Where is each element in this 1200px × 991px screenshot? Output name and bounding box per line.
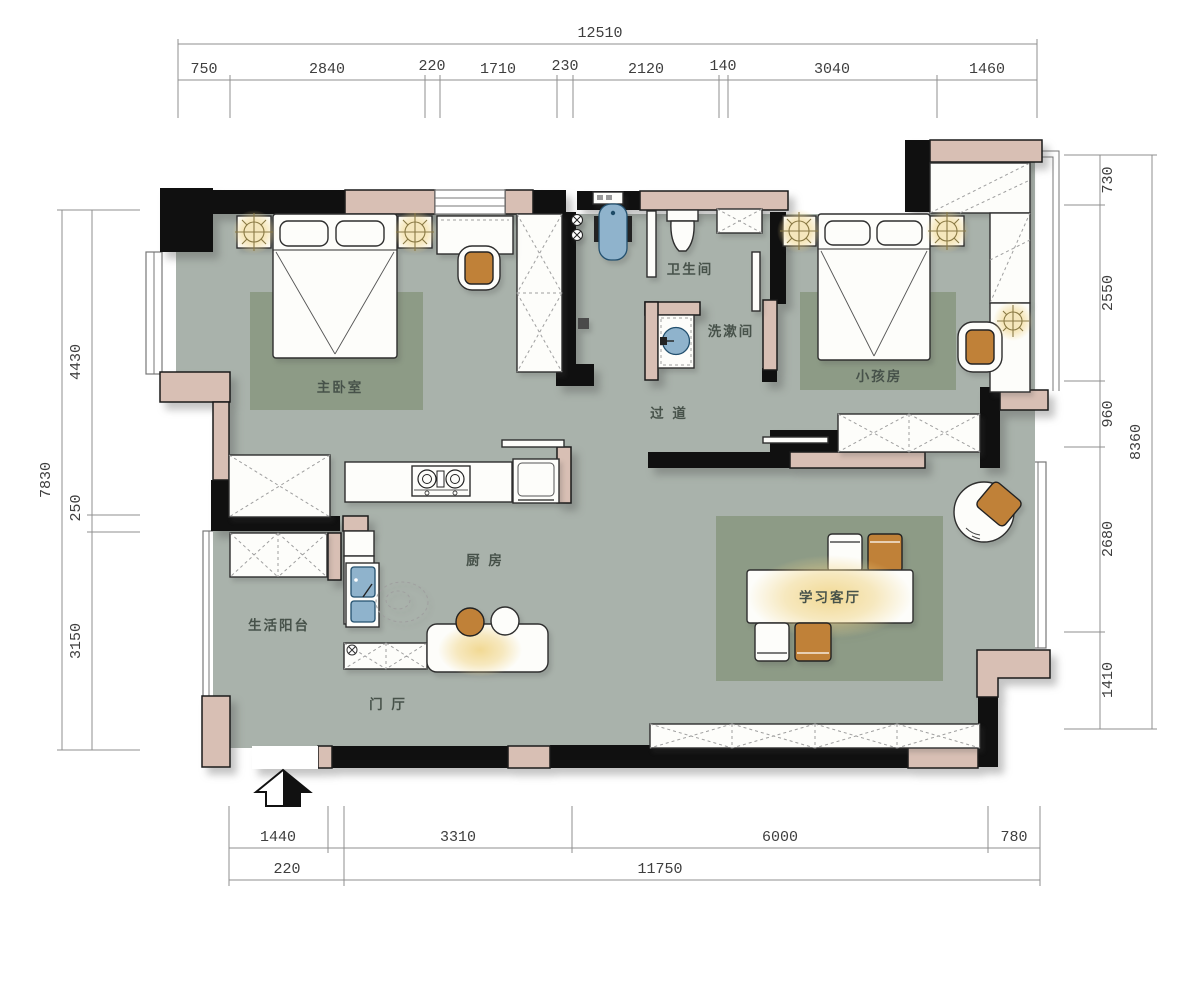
kitchen-sliding-door bbox=[502, 440, 564, 447]
kitchen-sink bbox=[346, 563, 379, 627]
room-label-bathroom: 卫生间 bbox=[667, 261, 714, 278]
floor-plan-page: 主卧室 卫生间 洗漱间 小孩房 过 道 厨 房 学习客厅 生活阳台 门 厅 12… bbox=[0, 0, 1200, 991]
lamp-icon bbox=[232, 210, 276, 254]
dim-top-seg: 3040 bbox=[814, 61, 850, 78]
fridge bbox=[513, 459, 559, 503]
room-label-washroom: 洗漱间 bbox=[708, 323, 755, 340]
dim-bottom-seg: 3310 bbox=[440, 829, 476, 846]
floor-plan-svg: 主卧室 卫生间 洗漱间 小孩房 过 道 厨 房 学习客厅 生活阳台 门 厅 12… bbox=[0, 0, 1200, 991]
dimension-chain-right: 8360 730 2550 960 2680 1410 bbox=[1064, 155, 1157, 729]
dim-right-seg: 730 bbox=[1100, 166, 1117, 193]
foyer-shoe-cabinet bbox=[650, 724, 980, 748]
dim-left-total: 7830 bbox=[38, 462, 55, 498]
bar-stool-white bbox=[491, 607, 519, 635]
kids-bed bbox=[818, 214, 930, 360]
dim-bottom-seg: 11750 bbox=[637, 861, 682, 878]
dimension-chain-bottom: 1440 3310 6000 780 220 11750 bbox=[229, 806, 1040, 886]
lamp-icon bbox=[777, 209, 821, 253]
kitchen-cabinet bbox=[344, 531, 374, 556]
kids-sliding-door bbox=[763, 437, 828, 443]
dim-top-total: 12510 bbox=[577, 25, 622, 42]
dim-left-seg: 250 bbox=[68, 494, 85, 521]
kids-wardrobe bbox=[838, 414, 980, 452]
entry-arrow-icon bbox=[256, 770, 310, 806]
dim-top-seg: 220 bbox=[418, 58, 445, 75]
lamp-icon bbox=[925, 209, 969, 253]
bathroom-top-cabinet bbox=[717, 209, 762, 233]
dim-right-seg: 1410 bbox=[1100, 662, 1117, 698]
room-label-corridor: 过 道 bbox=[650, 405, 688, 422]
room-label-foyer: 门 厅 bbox=[369, 696, 407, 713]
dining-chair-white bbox=[755, 623, 789, 661]
balcony-cabinet bbox=[230, 533, 327, 577]
dimension-chain-top: 12510 750 2840 220 1710 230 2120 140 304… bbox=[178, 25, 1037, 118]
master-south-wardrobe bbox=[229, 455, 330, 517]
dim-top-seg: 2120 bbox=[628, 61, 664, 78]
stove bbox=[412, 466, 470, 496]
dim-top-seg: 2840 bbox=[309, 61, 345, 78]
shower-partition bbox=[647, 211, 656, 277]
dim-left-seg: 3150 bbox=[68, 623, 85, 659]
bar-cabinet bbox=[344, 643, 427, 669]
dim-right-seg: 960 bbox=[1100, 400, 1117, 427]
dim-top-seg: 750 bbox=[190, 61, 217, 78]
dim-right-total: 8360 bbox=[1128, 424, 1145, 460]
dim-top-seg: 230 bbox=[551, 58, 578, 75]
bar-stool-orange bbox=[456, 608, 484, 636]
corridor-tall-cabinet bbox=[517, 214, 562, 372]
dim-bottom-seg: 220 bbox=[273, 861, 300, 878]
dim-top-seg: 1460 bbox=[969, 61, 1005, 78]
dim-left-seg: 4430 bbox=[68, 344, 85, 380]
master-top-window bbox=[435, 190, 505, 214]
washroom-partition bbox=[752, 252, 760, 311]
dim-bottom-seg: 6000 bbox=[762, 829, 798, 846]
dim-top-seg: 1710 bbox=[480, 61, 516, 78]
lamp-icon bbox=[993, 301, 1033, 341]
master-stool bbox=[458, 246, 500, 290]
room-label-kids: 小孩房 bbox=[856, 368, 903, 385]
dim-right-seg: 2550 bbox=[1100, 275, 1117, 311]
washroom-vanity bbox=[658, 315, 694, 368]
dimension-chain-left: 7830 4430 250 3150 bbox=[38, 210, 140, 750]
dim-bottom-seg: 780 bbox=[1000, 829, 1027, 846]
dim-bottom-seg: 1440 bbox=[260, 829, 296, 846]
entry-door-opening bbox=[252, 746, 318, 769]
master-bed bbox=[273, 214, 397, 358]
room-label-kitchen: 厨 房 bbox=[466, 552, 504, 569]
room-label-balcony: 生活阳台 bbox=[248, 617, 310, 634]
room-label-master: 主卧室 bbox=[317, 379, 364, 396]
dining-chair-orange bbox=[795, 623, 831, 661]
dim-top-seg: 140 bbox=[709, 58, 736, 75]
dim-right-seg: 2680 bbox=[1100, 521, 1117, 557]
lamp-icon bbox=[393, 210, 437, 254]
room-label-living: 学习客厅 bbox=[799, 589, 861, 606]
floor-drain bbox=[578, 318, 589, 329]
